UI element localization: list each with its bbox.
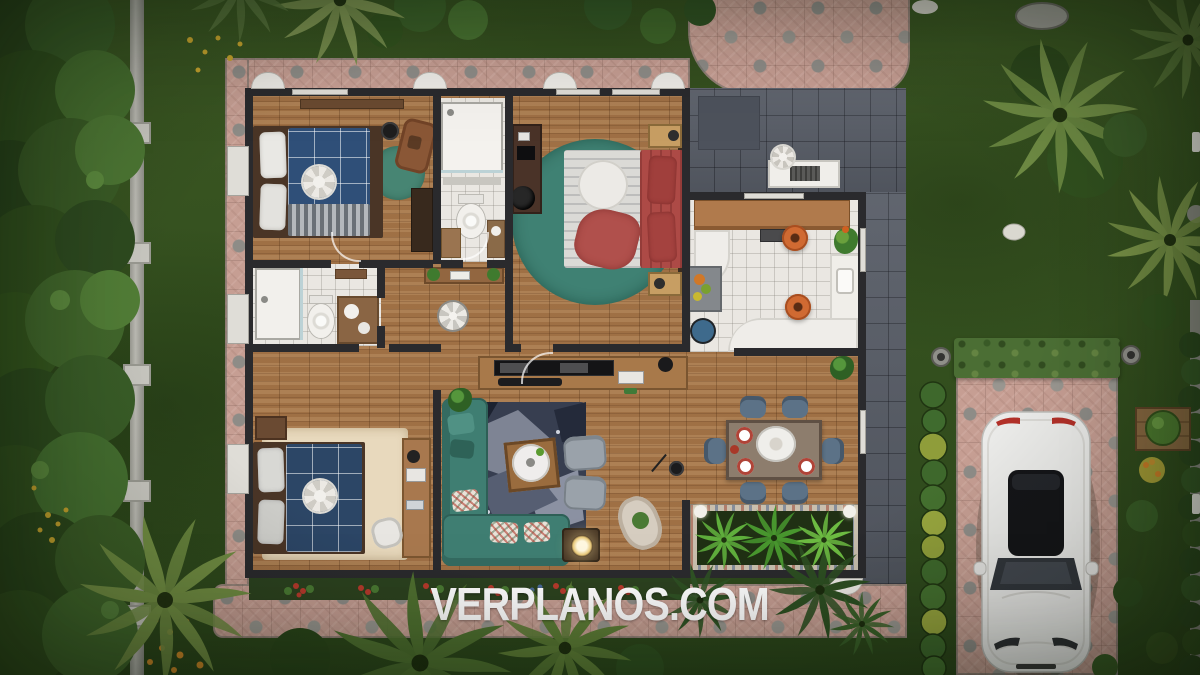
planter-plant (694, 511, 753, 570)
fence-post (1192, 132, 1200, 152)
bush (1126, 500, 1158, 532)
palm-tree (186, 0, 294, 42)
bush (1113, 577, 1143, 607)
bench-with-topiary (1136, 408, 1190, 450)
bush (1146, 632, 1178, 664)
bush (1092, 654, 1118, 675)
bollard-light (1122, 346, 1140, 364)
bollard-light (932, 348, 950, 366)
shrub-row (919, 382, 947, 675)
yellow-plant (1139, 457, 1165, 483)
watermark-text: VERPLANOS.COM (431, 577, 769, 631)
fence-post (1192, 494, 1200, 514)
bush (1140, 294, 1176, 330)
vegetation-and-car-layer (0, 0, 1200, 675)
floor-plan-render: VERPLANOS.COM (0, 0, 1200, 675)
canopy (270, 628, 330, 675)
bush (1103, 113, 1147, 157)
watermark: VERPLANOS.COM (300, 577, 900, 631)
palm-tree (1107, 0, 1200, 122)
top-garden-trees (367, 0, 716, 48)
white-car (974, 412, 1098, 672)
